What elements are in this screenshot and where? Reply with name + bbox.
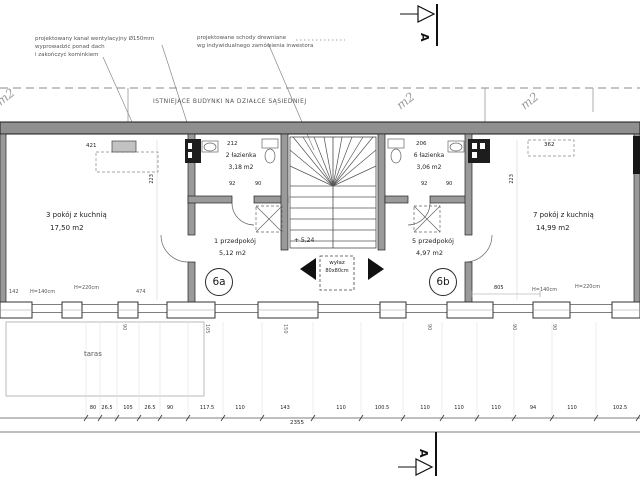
sill-h140-right: H=140cm: [532, 288, 557, 294]
chain-dim-9: 110: [328, 406, 354, 412]
dim-depth-left: 223: [150, 174, 156, 184]
room7-area: 14,99 m2: [536, 224, 570, 232]
stairs-note-line1: projektowane schody drewniane: [197, 35, 313, 43]
unit-badge-6a: 6a: [205, 268, 233, 296]
section-letter-top: A: [418, 33, 431, 42]
chain-dim-8: 143: [272, 406, 298, 412]
chain-dim-5: 90: [157, 406, 183, 412]
dim-474: 474: [136, 290, 146, 296]
dim-door-left-b: 90: [255, 182, 261, 188]
existing-buildings-label: ISTNIEJĄCE BUDYNKI NA DZIAŁCE SĄSIEDNIEJ: [153, 99, 307, 106]
window-width-5: 90: [510, 324, 516, 330]
bath2-area: 3,18 m2: [212, 165, 270, 172]
vent-note-line3: i zakończyć kominkiem: [35, 52, 154, 60]
room3-area: 17,50 m2: [50, 224, 84, 232]
sill-h140-left: H=140cm: [30, 290, 55, 296]
chain-dim-7: 110: [227, 406, 253, 412]
room7-name: 7 pokój z kuchnią: [533, 211, 594, 219]
window-width-2: 105: [203, 324, 209, 334]
hall5-area: 4,97 m2: [416, 250, 443, 257]
level-marker: + 5,24: [294, 238, 314, 245]
hatch-label-line2: 80x80cm: [318, 269, 356, 275]
dim-total: 2355: [290, 420, 304, 426]
window-width-3: 150: [281, 324, 287, 334]
chain-dim-16: 102.5: [607, 406, 633, 412]
chain-dim-11: 110: [412, 406, 438, 412]
window-width-4: 90: [425, 324, 431, 330]
vent-note: projektowany kanał wentylacyjny Ø150mm w…: [35, 36, 154, 60]
section-marker-bottom: A: [398, 432, 436, 476]
dim-door-left-a: 92: [229, 182, 235, 188]
terrace-outline: [6, 322, 204, 396]
bath6-name: 6 łazienka: [400, 153, 458, 160]
sill-h220-left: H=220cm: [74, 286, 99, 292]
window-width-6: 90: [550, 324, 556, 330]
dim-hall-right: 805: [494, 286, 504, 292]
chain-dim-12: 110: [446, 406, 472, 412]
chain-dim-15: 110: [559, 406, 585, 412]
section-letter-bottom: A: [417, 449, 430, 458]
unit-badge-6a-label: 6a: [212, 276, 225, 288]
staircase: [290, 137, 376, 248]
direction-arrow-left-icon: [300, 258, 316, 280]
dim-depth-right: 223: [510, 174, 516, 184]
dim-bath6-width: 206: [416, 141, 427, 147]
dim-room7-width: 362: [544, 142, 555, 148]
fixtures: [96, 139, 574, 232]
vent-note-line1: projektowany kanał wentylacyjny Ø150mm: [35, 36, 154, 44]
direction-arrow-right-icon: [368, 258, 384, 280]
plot-boundary-line: [0, 88, 640, 126]
dim-room3-width: 421: [86, 143, 97, 149]
unit-badge-6b-label: 6b: [436, 276, 449, 288]
hall1-area: 5,12 m2: [219, 250, 246, 257]
dim-bath2-width: 212: [227, 141, 238, 147]
chain-dim-14: 94: [520, 406, 546, 412]
stairs-note-line2: wg indywidualnego zamówienia inwestora: [197, 43, 313, 51]
chain-dim-10: 100.5: [369, 406, 395, 412]
floor-plan-canvas: A A projektowany kanał wentylacyjny Ø150…: [0, 0, 640, 480]
hall5-name: 5 przedpokój: [412, 238, 454, 245]
room3-name: 3 pokój z kuchnią: [46, 211, 107, 219]
section-marker-top: A: [400, 4, 437, 46]
terrace-label: taras: [84, 350, 102, 358]
bottom-wall-windows: [0, 302, 640, 318]
hall1-name: 1 przedpokój: [214, 238, 256, 245]
dim-door-right-b: 90: [446, 182, 452, 188]
chain-dim-13: 110: [483, 406, 509, 412]
window-width-1: 90: [120, 324, 126, 330]
sill-h220-right: H=220cm: [575, 285, 600, 291]
unit-badge-6b: 6b: [429, 268, 457, 296]
vent-note-line2: wyprowadzić ponad dach: [35, 44, 154, 52]
bath2-name: 2 łazienka: [212, 153, 270, 160]
dim-142: 142: [9, 290, 19, 296]
dim-door-right-a: 92: [421, 182, 427, 188]
hatch-label-line1: wyłaz: [320, 260, 354, 266]
chain-dim-6: 117.5: [194, 406, 220, 412]
bath6-area: 3,06 m2: [400, 165, 458, 172]
stairs-note: projektowane schody drewniane wg indywid…: [197, 35, 313, 51]
